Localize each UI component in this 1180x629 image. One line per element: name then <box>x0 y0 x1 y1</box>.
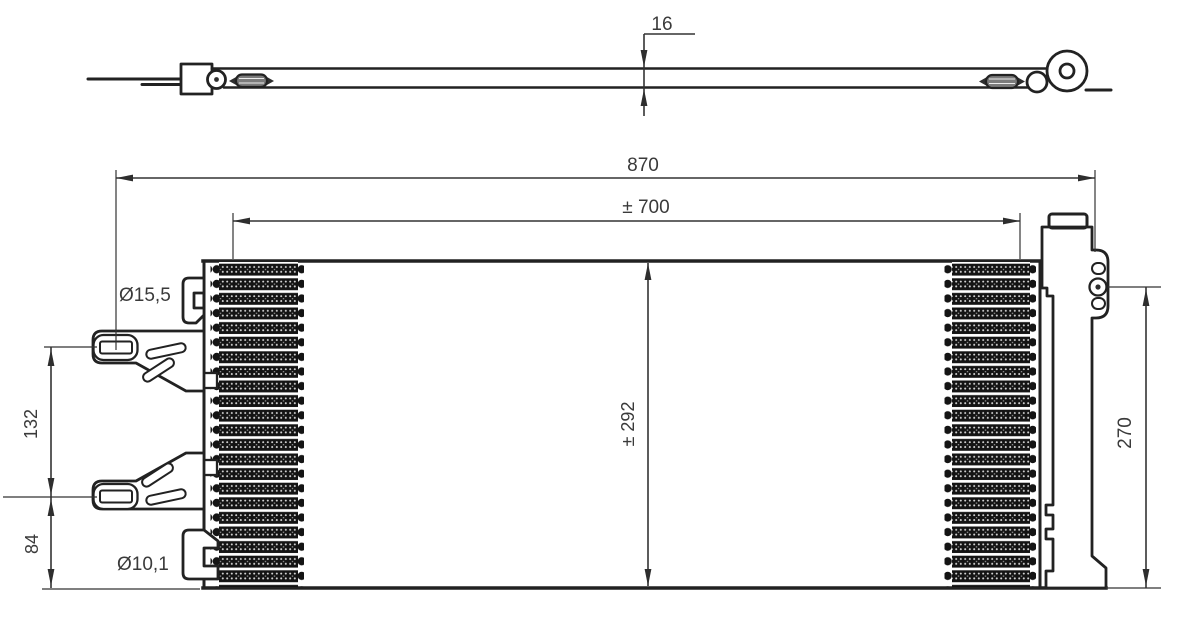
core-height-label: ± 292 <box>618 402 638 447</box>
profile-left-slot <box>229 75 274 88</box>
left-fin-block-right-scallops <box>296 262 304 587</box>
drier-height-label: 270 <box>1115 417 1136 449</box>
left-fin-block <box>219 262 298 587</box>
drawing-canvas: 16 <box>0 0 1180 629</box>
right-fin-block <box>952 262 1030 587</box>
dimension-strip-thickness: 16 <box>641 14 695 116</box>
overall-width-label: 870 <box>627 155 659 176</box>
bracket-spacing-label: 132 <box>21 409 41 439</box>
drier-port-circle-center <box>1095 284 1100 289</box>
front-view: 870 ± 700 ± 292 270 <box>3 155 1161 589</box>
lower-bracket <box>93 453 217 509</box>
upper-mount-tab <box>183 278 204 323</box>
dimension-drier-height: 270 <box>1106 287 1161 588</box>
right-fin-block-right-scallops <box>1028 262 1036 587</box>
strip-thickness-label: 16 <box>651 14 672 35</box>
condenser-technical-drawing: 16 <box>0 0 1180 629</box>
profile-right-slot <box>979 75 1025 88</box>
top-profile-view: 16 <box>88 14 1111 116</box>
dimension-bracket-spacing: 132 <box>21 347 97 497</box>
profile-right-large-circle-hole <box>1060 64 1074 78</box>
upper-hole-diameter-label: Ø15,5 <box>119 285 171 306</box>
tube-length-label: ± 700 <box>622 197 669 218</box>
profile-right-small-circle <box>1027 72 1047 92</box>
profile-left-fitting-dot <box>214 77 219 82</box>
upper-bracket <box>93 331 217 391</box>
drier-port-upper <box>1092 263 1105 274</box>
lower-hole-diameter-label: Ø10,1 <box>117 554 169 575</box>
bracket-to-bottom-label: 84 <box>22 534 42 554</box>
dimension-tube-length: ± 700 <box>233 197 1020 259</box>
drier-port-lower <box>1092 298 1105 309</box>
lower-bracket-slot-inner <box>100 491 132 503</box>
dimension-bracket-to-bottom: 84 <box>3 497 200 589</box>
dimension-core-height: ± 292 <box>618 263 651 586</box>
receiver-drier <box>1042 214 1108 588</box>
